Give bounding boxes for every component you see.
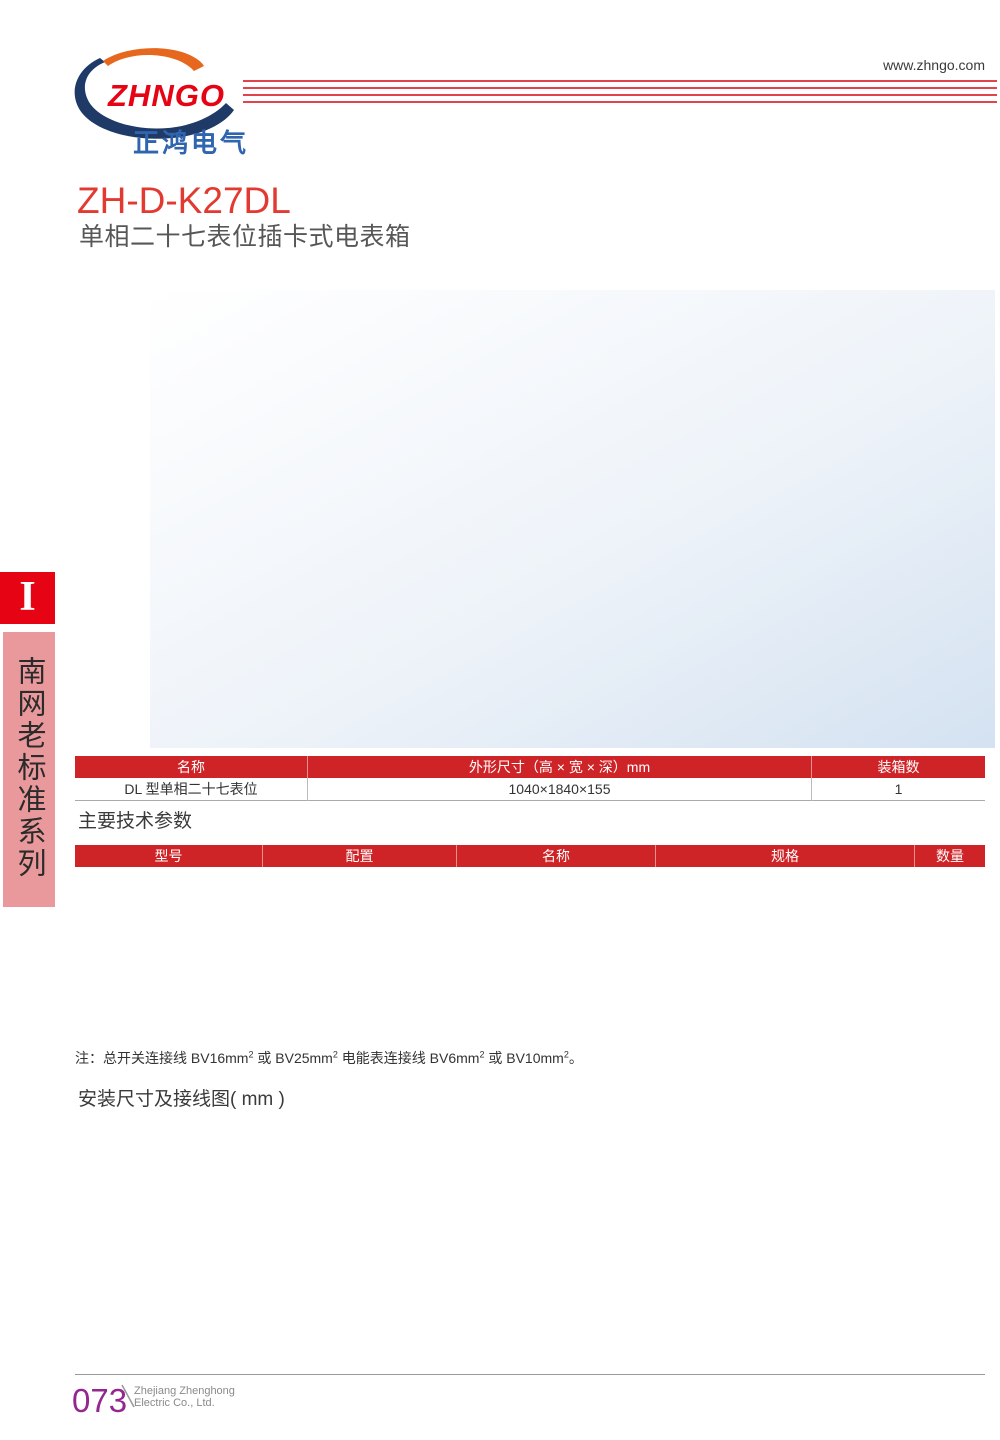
svg-text:ZHNGO: ZHNGO <box>107 78 225 113</box>
svg-text:正鸿电气: 正鸿电气 <box>133 128 249 158</box>
